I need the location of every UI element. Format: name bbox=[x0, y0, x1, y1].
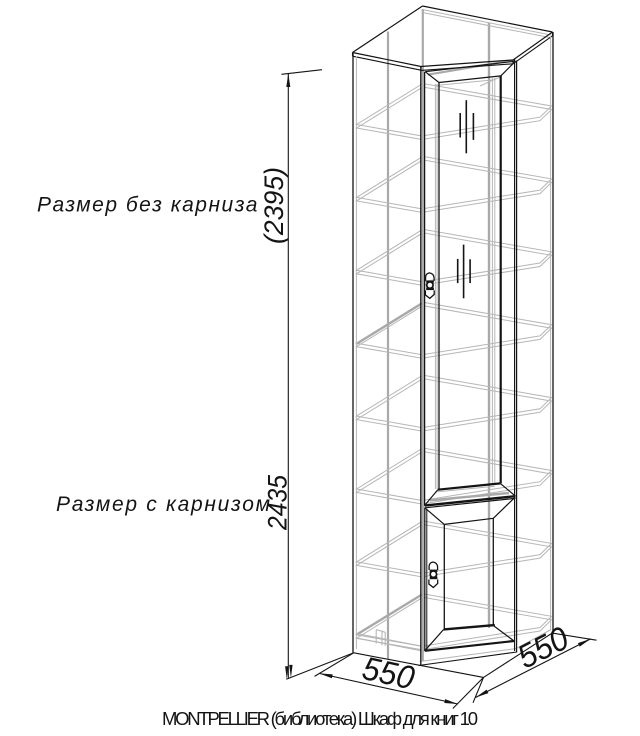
svg-text:Размер с карнизом: Размер с карнизом bbox=[56, 493, 272, 516]
svg-text:2435: 2435 bbox=[263, 475, 293, 531]
svg-text:Размер без карниза: Размер без карниза bbox=[37, 194, 259, 217]
svg-text:MONTPELLIER (библиотека) Шкаф: MONTPELLIER (библиотека) Шкаф для книг 1… bbox=[162, 708, 478, 729]
svg-text:(2395): (2395) bbox=[260, 167, 290, 244]
